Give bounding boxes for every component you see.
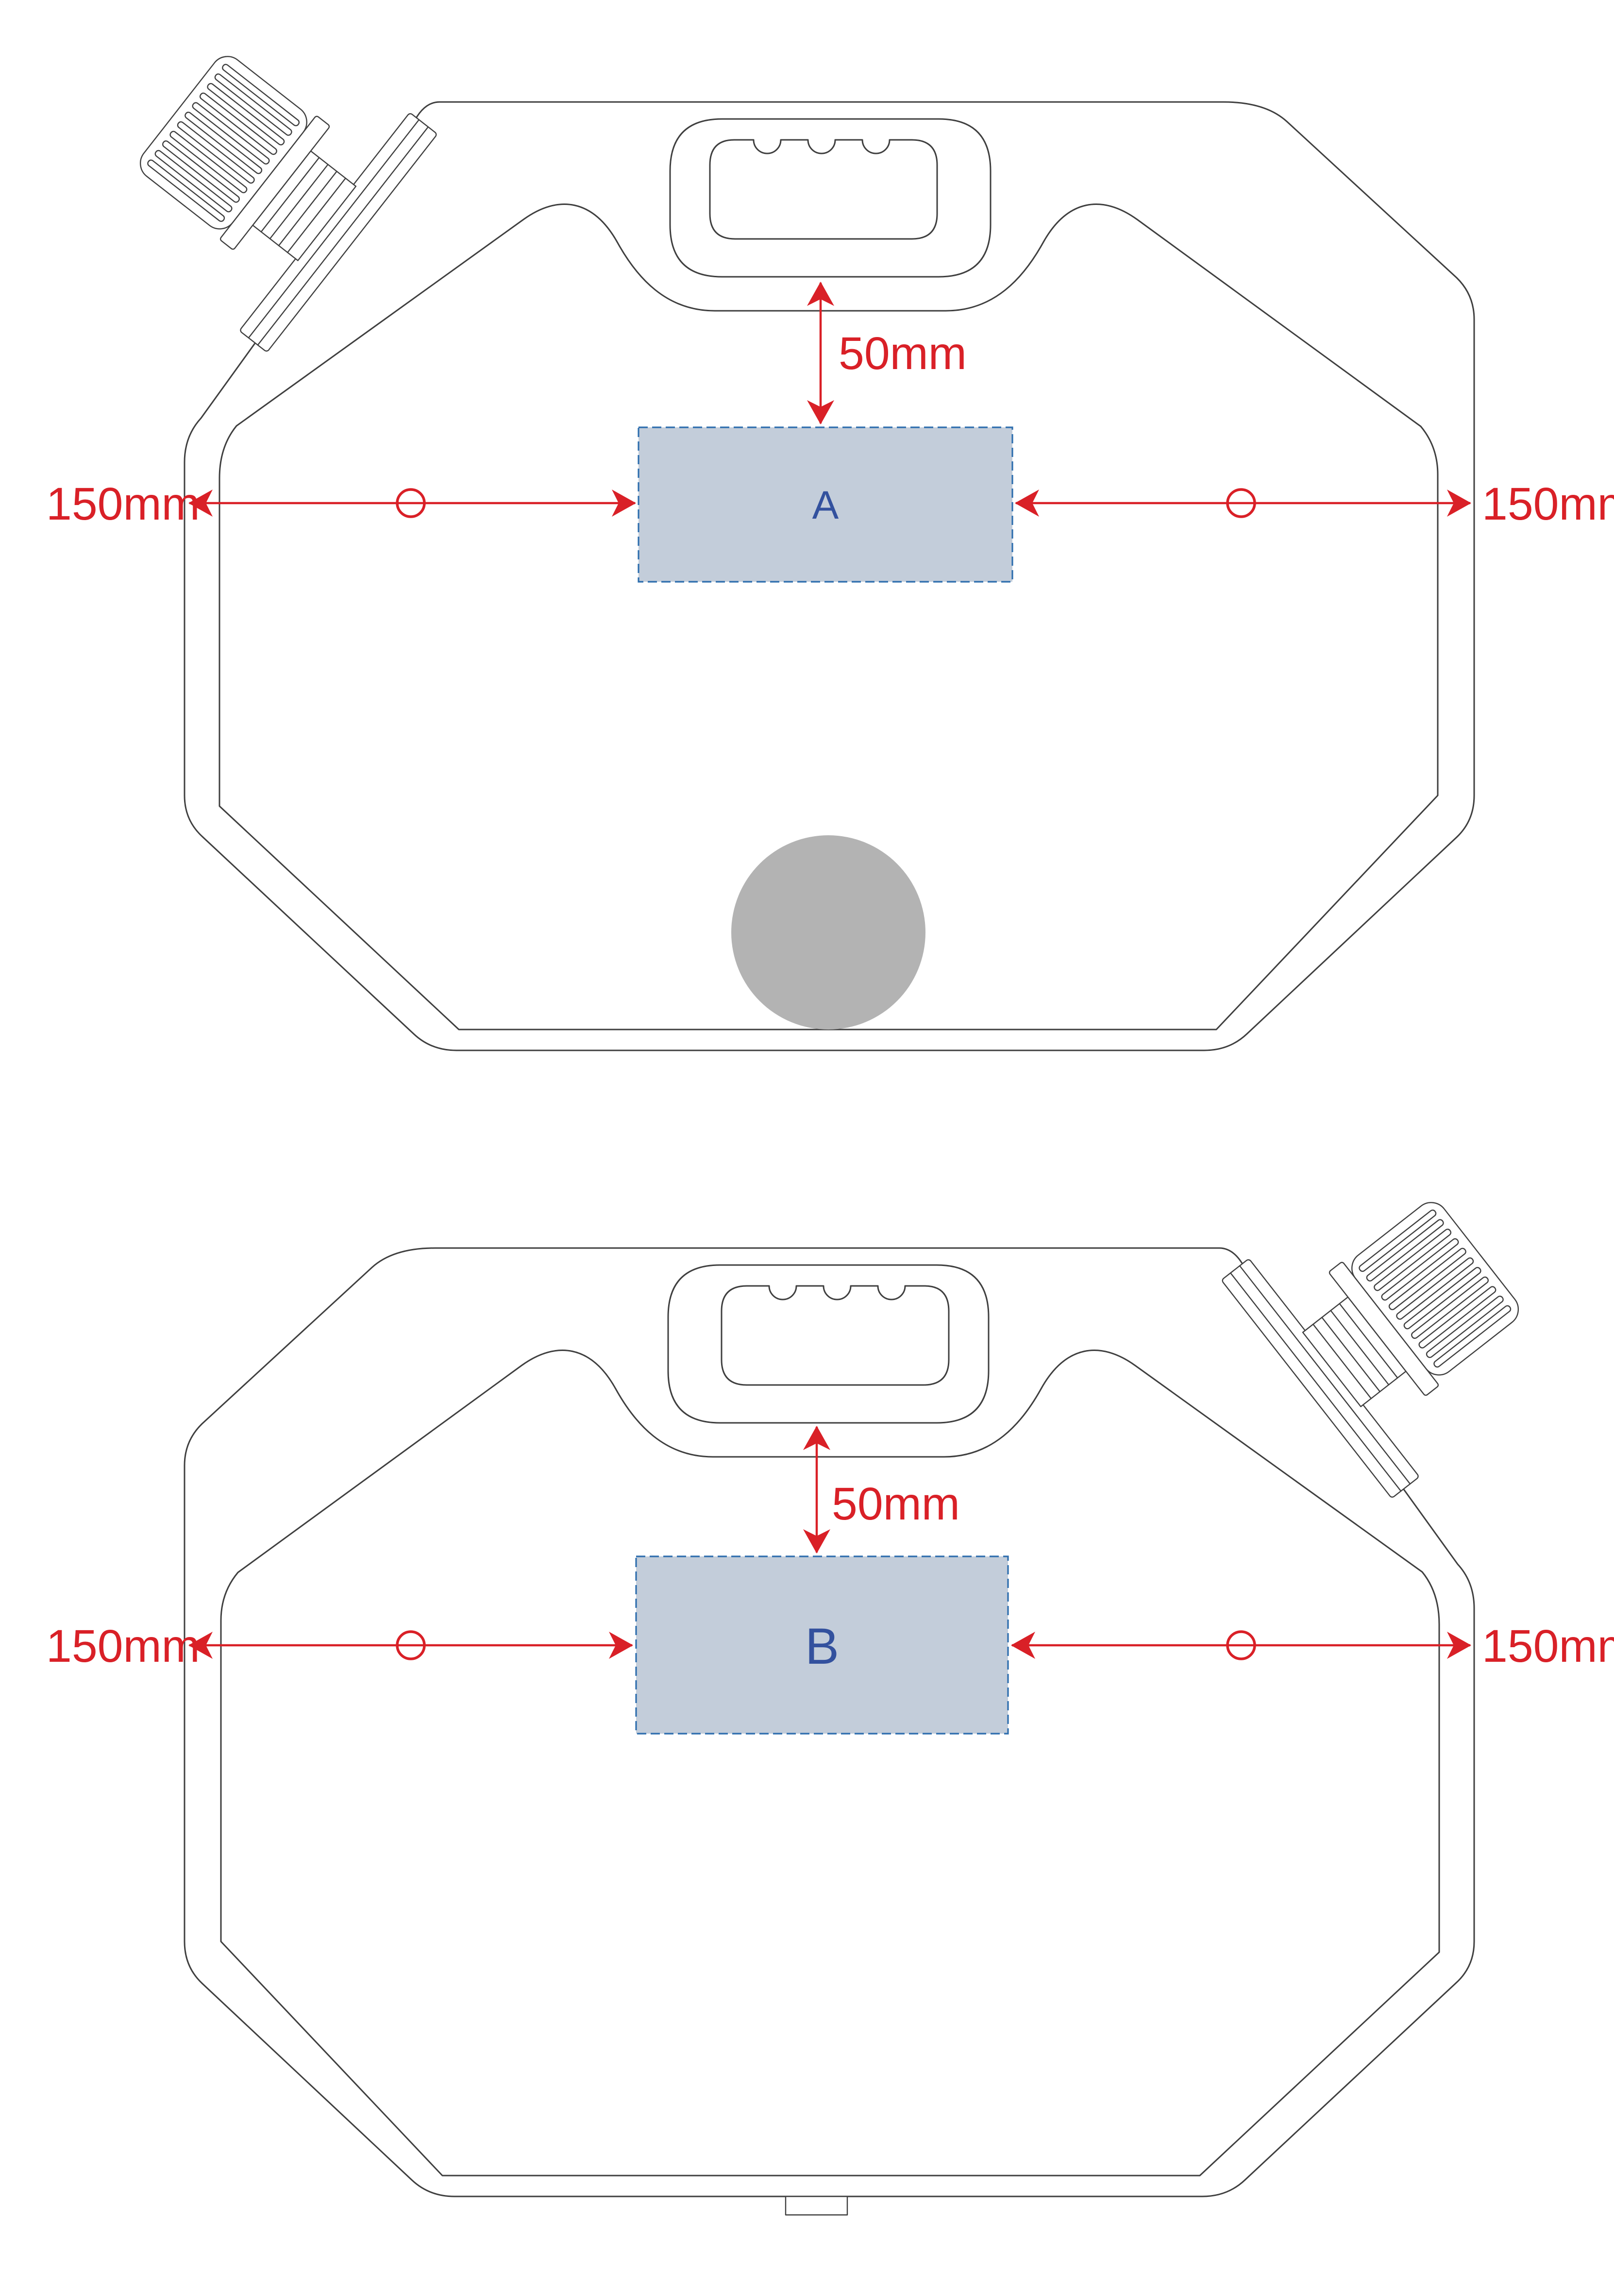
print-area-diagram: A 50mm 150mm 150mm B 50mm 150mm 150mm: [0, 0, 1614, 2296]
bottom-gusset-tab: [786, 2196, 847, 2215]
dim-label-b-left: 150mm: [46, 1621, 200, 1672]
spot-color-circle: [731, 835, 925, 1030]
dim-label-a-right: 150mm: [1482, 478, 1614, 530]
jug-a-drawing: A 50mm 150mm 150mm: [46, 0, 1614, 1050]
dim-label-b-top: 50mm: [832, 1478, 960, 1530]
dim-label-b-right: 150mm: [1482, 1621, 1614, 1672]
jug-b-drawing: B 50mm 150mm 150mm: [46, 1145, 1614, 2215]
panel-label-a: A: [812, 483, 839, 527]
dim-label-a-left: 150mm: [46, 478, 200, 530]
dim-label-a-top: 50mm: [839, 328, 967, 379]
panel-label-b: B: [805, 1618, 839, 1675]
